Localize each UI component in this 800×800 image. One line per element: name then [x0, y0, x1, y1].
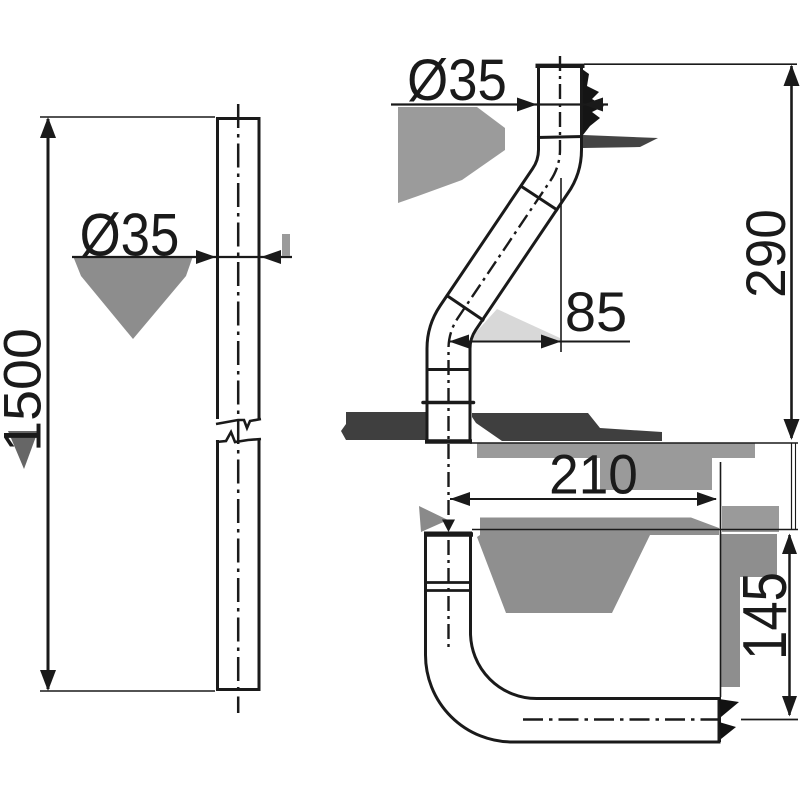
svg-text:Ø35: Ø35: [80, 201, 180, 268]
svg-text:1500: 1500: [0, 328, 52, 452]
svg-text:Ø35: Ø35: [407, 48, 507, 113]
svg-text:290: 290: [735, 209, 798, 298]
svg-text:145: 145: [731, 572, 800, 660]
svg-text:85: 85: [565, 280, 627, 343]
svg-text:210: 210: [549, 443, 638, 506]
